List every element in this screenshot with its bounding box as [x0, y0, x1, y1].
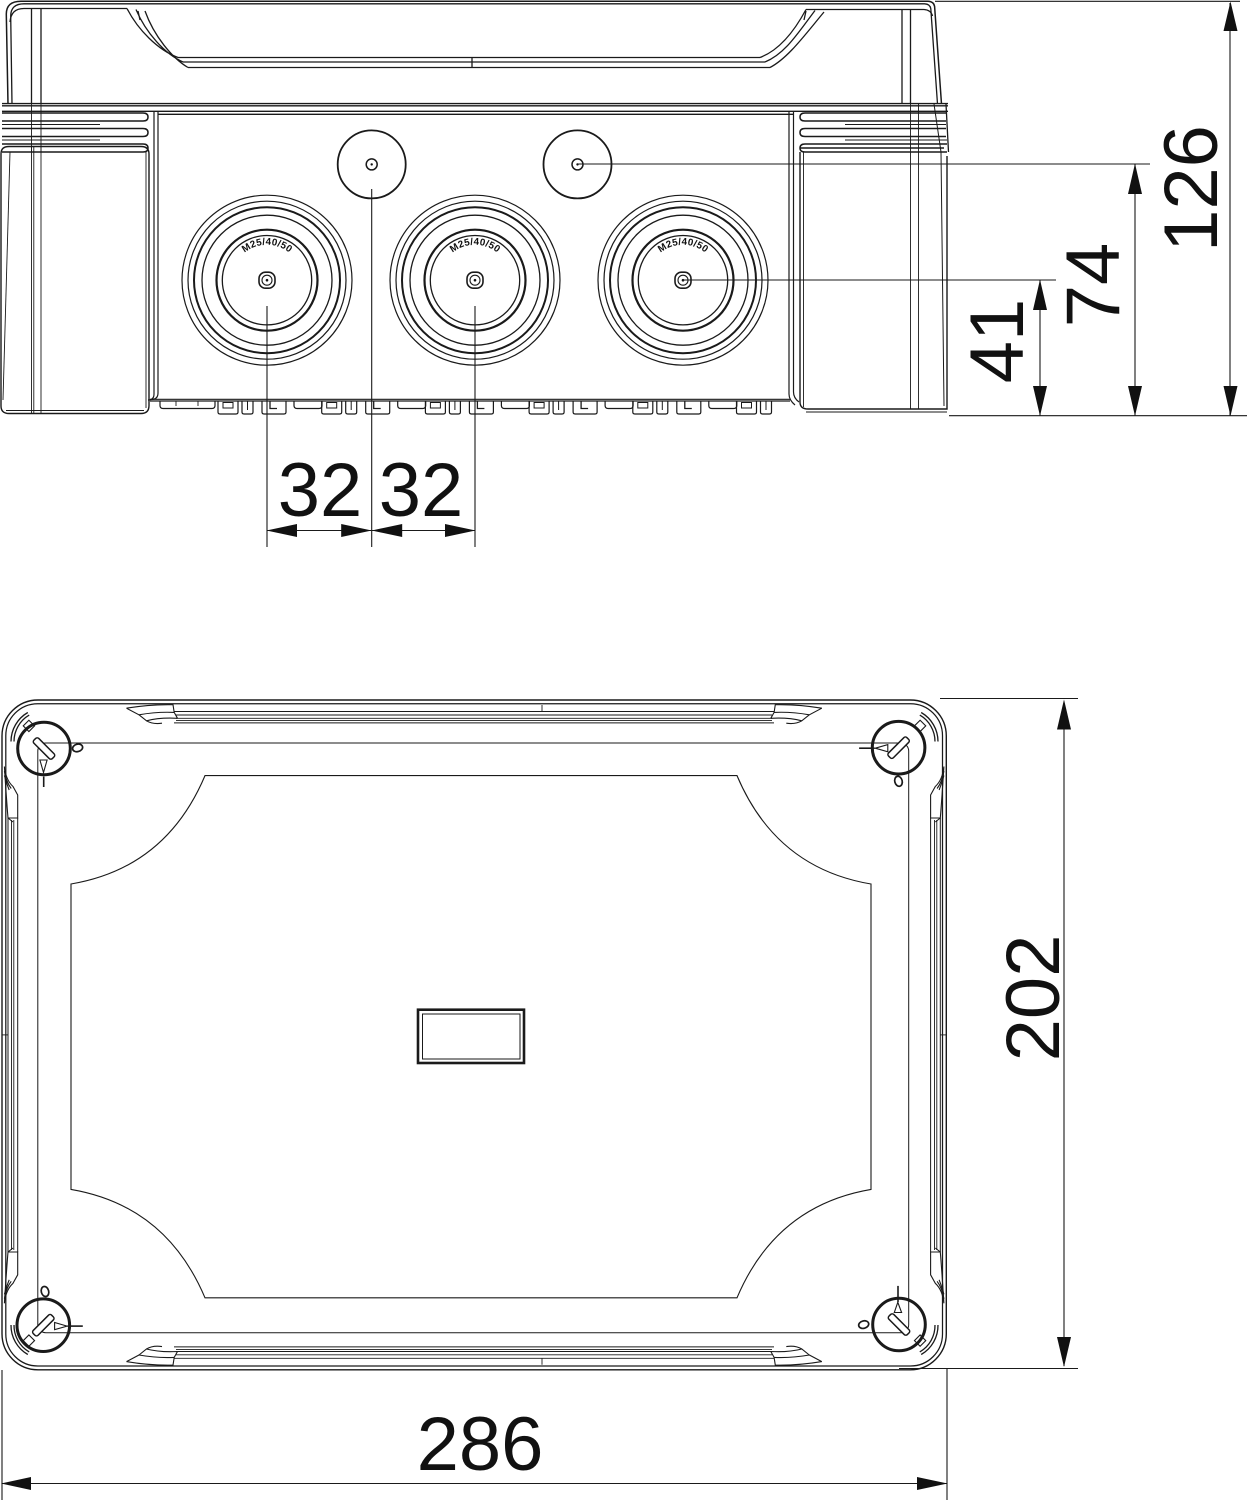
svg-text:74: 74	[1051, 243, 1136, 328]
svg-text:286: 286	[417, 1402, 544, 1487]
svg-text:32: 32	[379, 448, 464, 533]
svg-text:202: 202	[991, 935, 1076, 1062]
svg-text:32: 32	[278, 448, 363, 533]
svg-text:126: 126	[1149, 125, 1234, 252]
svg-text:41: 41	[955, 299, 1040, 384]
